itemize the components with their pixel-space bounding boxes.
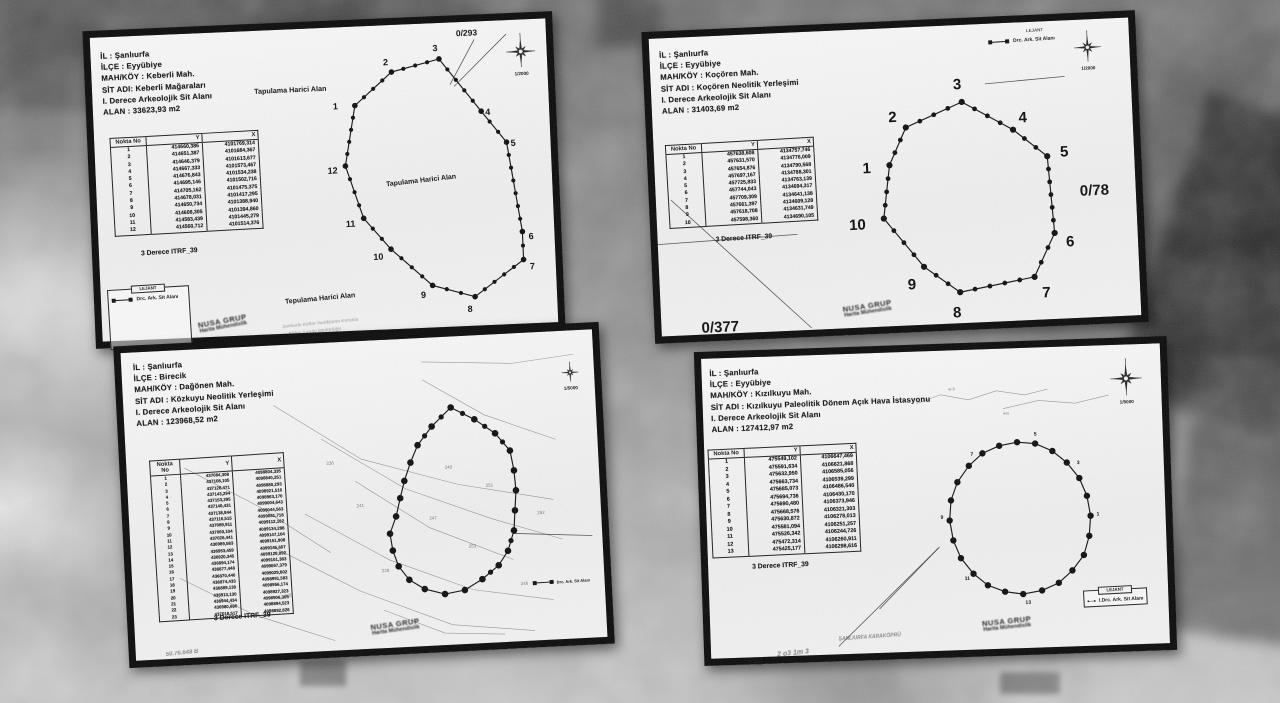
- vertex-number: 13: [1025, 600, 1031, 606]
- boundary-dot: [509, 166, 513, 170]
- boundary-dot: [1063, 459, 1070, 466]
- boundary-dot: [985, 113, 990, 118]
- boundary-dot: [1022, 136, 1027, 141]
- pebble: [1000, 672, 1060, 694]
- boundary-dot: [516, 204, 520, 208]
- boundary-dot: [421, 586, 428, 593]
- legend-box: LEJANTDrc. Ark. Sit Alanı: [985, 29, 1086, 48]
- boundary-dot: [508, 538, 513, 543]
- boundary-dot: [380, 237, 384, 241]
- scene: İL : ŞanlıurfaİLÇE : EyyübiyeMAH/KÖY : K…: [0, 0, 1280, 703]
- boundary-dot: [371, 87, 375, 91]
- boundary-dot: [886, 162, 892, 168]
- boundary-dot: [512, 265, 516, 269]
- boundary-dot: [471, 416, 478, 423]
- map-header: İL : ŞanlıurfaİLÇE : EyyübiyeMAH/KÖY : K…: [709, 360, 931, 436]
- boundary-dot: [945, 106, 950, 111]
- map-header: İL : ŞanlıurfaİLÇE : BirecikMAH/KÖY : Da…: [133, 354, 276, 430]
- vertex-number: 9: [421, 290, 426, 300]
- vertex-number: 7: [530, 261, 535, 271]
- boundary-dot: [1014, 439, 1021, 446]
- boundary-dot: [972, 106, 977, 111]
- boundary-line-symbol-icon: [1087, 598, 1096, 604]
- contour-line: [421, 354, 573, 368]
- boundary-dot: [511, 527, 518, 534]
- boundary-dot: [348, 177, 352, 181]
- compass-rose-icon: [561, 361, 579, 382]
- vertex-number: 3: [953, 76, 962, 93]
- map-sheet-kizilkuyu: İL : ŞanlıurfaİLÇE : EyyübiyeMAH/KÖY : K…: [694, 336, 1177, 666]
- compass-rose-icon: [1110, 358, 1142, 396]
- point-number: 12: [115, 226, 151, 236]
- boundary-dot: [401, 477, 408, 484]
- boundary-dot: [513, 191, 517, 195]
- boundary-dot: [505, 547, 512, 554]
- boundary-dot: [996, 442, 1003, 449]
- map-line: [985, 76, 1065, 84]
- boundary-dot: [1032, 440, 1039, 447]
- handwritten-note: 7 Ru: [747, 660, 762, 667]
- map-label: 251: [486, 482, 494, 487]
- map-label: 247: [429, 515, 437, 520]
- contour-line: [1003, 395, 1109, 409]
- boundary-dot: [886, 176, 891, 181]
- handwritten-note: 50.76.648 B: [166, 649, 199, 658]
- point-number: 13: [713, 548, 749, 558]
- contour-line: [305, 502, 554, 612]
- pebble: [300, 660, 346, 686]
- boundary-dot: [921, 264, 927, 270]
- boundary-dot: [410, 265, 414, 269]
- map-label: 236: [326, 460, 334, 465]
- boundary-dot: [1050, 205, 1055, 210]
- boundary-dot: [1048, 192, 1053, 197]
- boundary-dot: [406, 576, 413, 583]
- site-boundary-polygon: [384, 404, 521, 596]
- vertex-number: 7: [1042, 284, 1051, 301]
- contour-line: [273, 392, 553, 514]
- map-sheet-kozkuyu: İL : ŞanlıurfaİLÇE : BirecikMAH/KÖY : Da…: [113, 322, 615, 668]
- point-number: 10: [670, 219, 706, 229]
- boundary-dot: [998, 120, 1003, 125]
- vertex-number: 6: [528, 231, 533, 241]
- boundary-dot: [1031, 274, 1037, 280]
- boundary-dot: [966, 463, 973, 470]
- map-label: 262: [537, 510, 545, 515]
- boundary-dot: [1069, 567, 1076, 574]
- vertex-number: 5: [510, 138, 515, 148]
- legend-label: Drc. Ark. Sit Alanı: [1013, 35, 1055, 44]
- boundary-line-symbol-icon: [988, 38, 1010, 45]
- vertex-number: 3: [432, 43, 437, 53]
- vertex-number: 6: [1066, 233, 1075, 250]
- datum-note: 3 Derece ITRF_39: [752, 561, 809, 571]
- map-label: 241: [356, 503, 364, 508]
- boundary-dot: [1047, 179, 1052, 184]
- boundary-dot: [492, 280, 496, 284]
- boundary-dot: [950, 537, 957, 544]
- boundary-dot: [472, 294, 478, 300]
- legend-label: I.Drc. Ark. Sit Alanı: [1099, 595, 1144, 603]
- site-boundary-polygon: [879, 98, 1057, 295]
- boundary-dot: [931, 112, 936, 117]
- boundary-dot: [471, 99, 475, 103]
- map-label: 0/78: [1079, 182, 1109, 200]
- map-label: 228: [382, 568, 390, 573]
- boundary-dot: [445, 67, 449, 71]
- boundary-dot: [407, 459, 414, 466]
- map-line: [452, 34, 508, 86]
- map-label: 0/377: [701, 318, 739, 337]
- boundary-dot: [506, 447, 513, 454]
- boundary-dot: [1017, 277, 1022, 282]
- legend-box: LEJANTI.Drc. Ark. Sit Alanı: [1083, 587, 1148, 607]
- vertex-number: 8: [467, 304, 472, 314]
- boundary-dot: [436, 56, 442, 62]
- boundary-dot: [483, 287, 487, 291]
- boundary-dot: [1046, 166, 1051, 171]
- handwritten-note: 2 o3 1m 3: [777, 648, 809, 658]
- coordinate-table: Nokta NoYX1475549,1024106647,4692475591,…: [707, 443, 861, 558]
- boundary-dot: [1039, 587, 1046, 594]
- boundary-dot: [1010, 126, 1016, 132]
- vertex-number: 2: [888, 109, 897, 126]
- boundary-dot: [957, 289, 963, 295]
- legend-item: Drc. Ark. Sit Alanı: [985, 32, 1085, 48]
- boundary-dot: [447, 404, 454, 411]
- map-label: 253: [469, 543, 477, 548]
- vertex-number: 12: [327, 165, 337, 175]
- boundary-dot: [459, 291, 463, 295]
- map-header: İL : ŞanlıurfaİLÇE : EyyübiyeMAH/KÖY : K…: [659, 43, 800, 117]
- legend-box: LEJANTDrc. Ark. Sit Alanı: [107, 285, 192, 350]
- boundary-dot: [479, 576, 486, 583]
- legend-label: Drc. Ark. Sit Alanı: [136, 294, 178, 303]
- boundary-dot: [442, 591, 449, 598]
- boundary-dot: [973, 287, 978, 292]
- boundary-dot: [510, 467, 517, 474]
- boundary-dot: [347, 140, 351, 144]
- boundary-dot: [987, 284, 992, 289]
- boundary-line-symbol-icon: [532, 579, 554, 586]
- vertex-number: 11: [965, 576, 971, 582]
- boundary-line-symbol-icon: [111, 297, 133, 304]
- boundary-dot: [519, 229, 525, 235]
- boundary-dot: [345, 152, 349, 156]
- map-label: Tepulama Harici Alan: [285, 292, 356, 306]
- boundary-dot: [901, 240, 906, 245]
- boundary-dot: [413, 63, 417, 67]
- boundary-dot: [881, 215, 887, 221]
- boundary-dot: [1084, 493, 1091, 500]
- boundary-dot: [482, 424, 487, 429]
- compass-rose-icon: [506, 32, 536, 67]
- boundary-dot: [357, 203, 361, 207]
- boundary-dot: [511, 178, 515, 182]
- boundary-dot: [371, 226, 375, 230]
- boundary-dot: [495, 562, 502, 569]
- boundary-dot: [502, 272, 506, 276]
- boundary-dot: [985, 582, 992, 589]
- legend-item: I.Drc. Ark. Sit Alanı: [1084, 593, 1146, 606]
- vertex-number: 7: [970, 452, 973, 458]
- vertex-number: 10: [373, 252, 383, 262]
- boundary-dot: [420, 274, 424, 278]
- boundary-dot: [911, 252, 916, 257]
- boundary-dot: [512, 487, 519, 494]
- scale-label: 1/5000: [564, 385, 579, 391]
- vertex-number: 9: [907, 276, 916, 293]
- boundary-dot: [1049, 448, 1056, 455]
- boundary-dot: [425, 60, 429, 64]
- map-line: [836, 548, 942, 646]
- surveyor-stamp: NUSA GRUPHarita Mühendislik: [982, 614, 1032, 633]
- map-line: [514, 530, 592, 540]
- vertex-number: 2: [383, 57, 388, 67]
- boundary-dot: [478, 108, 484, 114]
- boundary-dot: [414, 442, 421, 449]
- boundary-dot: [361, 215, 367, 221]
- boundary-dot: [1076, 475, 1083, 482]
- boundary-dot: [1020, 591, 1027, 598]
- boundary-dot: [892, 150, 897, 155]
- coord-x: 4106298,616: [804, 543, 860, 554]
- boundary-dot: [934, 273, 939, 278]
- boundary-dot: [917, 119, 922, 124]
- boundary-dot: [488, 569, 493, 574]
- boundary-dot: [946, 281, 951, 286]
- boundary-dot: [352, 103, 358, 109]
- boundary-dot: [445, 287, 449, 291]
- map-label: 246: [521, 581, 529, 586]
- boundary-dot: [979, 450, 986, 457]
- boundary-dot: [883, 203, 888, 208]
- surveyor-stamp: NUSA GRUPHarita Mühendislik: [842, 298, 893, 319]
- legend-item: Drc. Ark. Sit Alanı: [530, 574, 610, 587]
- boundary-dot: [500, 439, 505, 444]
- boundary-dot: [504, 139, 510, 145]
- boundary-dot: [970, 570, 977, 577]
- map-label: 0/293: [456, 27, 478, 38]
- boundary-dot: [1086, 532, 1093, 539]
- vertex-number: 4: [485, 107, 490, 117]
- coordinate-table: Nokta NoYX1457638,6084134757,7462457631,…: [665, 137, 819, 229]
- legend-item: Drc. Ark. Sit Alanı: [108, 291, 188, 306]
- boundary-dot: [399, 256, 403, 260]
- boundary-dot: [1002, 281, 1007, 286]
- boundary-dot: [438, 414, 443, 419]
- boundary-dot: [948, 497, 955, 504]
- scale-label: 1/2000: [514, 71, 529, 77]
- coord-x: 4101514,376: [207, 220, 263, 231]
- coord-y: 414560,712: [151, 223, 207, 234]
- site-boundary-polygon: [341, 56, 525, 302]
- map-label: w/s: [1003, 410, 1009, 415]
- boundary-dot: [1033, 145, 1038, 150]
- map-label: Tapulama Harici Alan: [386, 173, 457, 188]
- vertex-number: 5: [1034, 432, 1037, 438]
- contour-line: [321, 427, 562, 551]
- boundary-dot: [428, 423, 435, 430]
- boundary-dot: [393, 513, 400, 520]
- legend-box: Drc. Ark. Sit Alanı: [530, 574, 610, 587]
- datum-note: 3 Derece ITRF_39: [141, 247, 198, 257]
- boundary-dot: [395, 563, 402, 570]
- vertex-number: 9: [940, 515, 943, 521]
- boundary-dot: [884, 189, 889, 194]
- vertex-number: 11: [346, 219, 356, 229]
- boundary-dot: [389, 69, 395, 75]
- point-number: 23: [159, 613, 189, 622]
- boundary-dot: [1039, 260, 1044, 265]
- vertex-number: 10: [849, 216, 866, 234]
- boundary-dot: [1056, 580, 1063, 587]
- boundary-dot: [397, 495, 404, 502]
- boundary-dot: [1051, 230, 1057, 236]
- boundary-dot: [352, 190, 356, 194]
- surveyor-stamp: NUSA GRUPHarita Mühendislik: [370, 616, 421, 637]
- boundary-dot: [388, 246, 394, 252]
- boundary-dot: [903, 124, 909, 130]
- boundary-dot: [401, 67, 405, 71]
- vertex-number: 1: [862, 160, 871, 177]
- coordinate-table: Nokta NoYX1414660,3864101769,3142414651,…: [109, 130, 263, 237]
- scale-label: 1/5000: [1120, 399, 1135, 404]
- boundary-dot: [898, 138, 903, 143]
- boundary-dot: [349, 128, 353, 132]
- boundary-dot: [954, 479, 961, 486]
- map-label: 240: [445, 464, 453, 469]
- boundary-dot: [518, 217, 522, 221]
- boundary-dot: [1051, 218, 1056, 223]
- boundary-dot: [430, 283, 436, 289]
- vertex-number: 3: [1077, 460, 1080, 466]
- boundary-dot: [496, 130, 500, 134]
- boundary-dot: [454, 78, 458, 82]
- boundary-dot: [521, 243, 525, 247]
- boundary-dot: [462, 88, 466, 92]
- boundary-dot: [351, 116, 355, 120]
- map-sheet-keberli: İL : ŞanlıurfaİLÇE : EyyübiyeMAH/KÖY : K…: [82, 11, 565, 349]
- map-header: İL : ŞanlıurfaİLÇE : EyyübiyeMAH/KÖY : K…: [100, 45, 213, 118]
- boundary-dot: [460, 411, 465, 416]
- boundary-dot: [1087, 512, 1094, 519]
- boundary-dot: [1002, 588, 1009, 595]
- coord-y: 475425,177: [749, 545, 805, 556]
- vertex-number: 5: [1060, 143, 1069, 160]
- map-sheet-kocoren: İL : ŞanlıurfaİLÇE : EyyübiyeMAH/KÖY : K…: [641, 10, 1148, 344]
- boundary-dot: [343, 163, 349, 169]
- boundary-dot: [487, 119, 491, 123]
- map-label: Tapulama Harici Alan: [254, 84, 327, 96]
- map-line: [448, 39, 476, 84]
- boundary-dot: [958, 99, 964, 105]
- boundary-dot: [946, 517, 953, 524]
- site-boundary-polygon: [947, 440, 1093, 597]
- boundary-dot: [507, 153, 511, 157]
- boundary-dot: [461, 587, 468, 594]
- boundary-dot: [958, 555, 965, 562]
- boundary-dot: [1045, 245, 1050, 250]
- legend-label: Drc. Ark. Sit Alanı: [556, 577, 590, 584]
- contour-line: [355, 474, 513, 568]
- map-label: w-9: [948, 386, 955, 391]
- surveyor-stamp: NUSA GRUPHarita Mühendislik: [197, 312, 248, 335]
- vertex-number: 1: [1096, 511, 1099, 517]
- handwritten-note: ŞANLIURFA KARAKÖPRÜ: [838, 632, 901, 642]
- coordinate-table: Nokta NoYX1437084,3084098804,3352437108,…: [149, 452, 294, 622]
- boundary-dot: [380, 78, 384, 82]
- boundary-dot: [891, 228, 896, 233]
- boundary-dot: [1044, 153, 1050, 159]
- datum-note: 3 Derece ITRF_39: [715, 233, 772, 243]
- boundary-dot: [362, 95, 366, 99]
- boundary-dot: [422, 433, 427, 438]
- boundary-dot: [387, 530, 394, 537]
- scale-label: 1/2000: [1081, 65, 1096, 71]
- contour-line: [422, 373, 555, 445]
- vertex-number: 4: [1018, 109, 1028, 126]
- contour-line: [916, 389, 1047, 403]
- vertex-number: 8: [953, 304, 962, 321]
- boundary-dot: [512, 507, 519, 514]
- boundary-dot: [521, 257, 527, 263]
- map-line: [878, 547, 942, 609]
- vertex-number: 1: [333, 101, 338, 111]
- boundary-dot: [492, 430, 499, 437]
- boundary-dot: [1081, 552, 1088, 559]
- boundary-dot: [389, 547, 396, 554]
